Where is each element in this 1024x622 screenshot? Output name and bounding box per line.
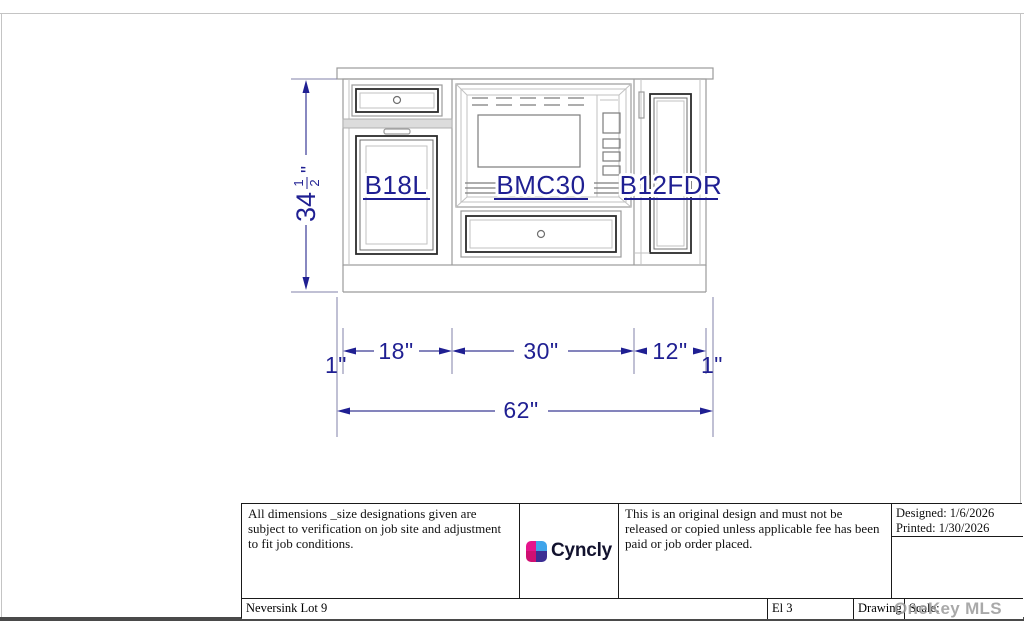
dim-12in: 12" (652, 338, 687, 364)
b18l-door-handle (384, 129, 410, 134)
elevation-cell: El 3 (767, 598, 853, 619)
empty-subcell (892, 537, 1023, 598)
dim-18in: 18" (378, 338, 413, 364)
dates-subcell: Designed: 1/6/2026 Printed: 1/30/2026 (892, 504, 1023, 537)
disclaimer-right-text: This is an original design and must not … (625, 506, 879, 551)
countertop (337, 68, 713, 79)
disclaimer-left-cell: All dimensions _size designations given … (242, 504, 519, 598)
cabinet-labels: B18L BMC30 B12FDR (363, 170, 722, 200)
disclaimer-left-text: All dimensions _size designations given … (248, 506, 501, 551)
dim-filler-left: 1" (325, 352, 347, 378)
height-dim-unit: " (298, 166, 320, 173)
drawing-page: B18L BMC30 B12FDR 34 1 2 " (0, 0, 1024, 622)
disclaimer-right-cell: This is an original design and must not … (618, 504, 891, 598)
microwave-control-buttons (603, 113, 620, 175)
cyncly-logo-icon (526, 541, 547, 562)
project-name-cell: Neversink Lot 9 (242, 598, 767, 619)
bmc30-drawer-knob (538, 231, 545, 238)
printed-date: Printed: 1/30/2026 (896, 521, 1019, 536)
microwave-window (478, 115, 580, 167)
height-dim-denominator: 2 (307, 179, 322, 186)
dimension-height: 34 1 2 " (291, 79, 338, 292)
b18l-rail (343, 119, 452, 128)
dim-30in: 30" (523, 338, 558, 364)
dimension-total-width: 62" (337, 397, 713, 423)
height-dim-numerator: 1 (291, 179, 306, 186)
b18l-drawer-knob (394, 97, 401, 104)
dates-cell: Designed: 1/6/2026 Printed: 1/30/2026 (891, 504, 1023, 598)
label-b18l: B18L (365, 170, 428, 200)
label-b12fdr: B12FDR (620, 170, 723, 200)
designed-date: Designed: 1/6/2026 (896, 506, 1019, 521)
logo-cell: Cyncly (519, 504, 618, 598)
onekey-mls-watermark: OneKey MLS (894, 599, 1002, 619)
label-bmc30: BMC30 (496, 170, 585, 200)
height-dim-whole: 34 (291, 192, 321, 222)
dim-filler-right: 1" (701, 352, 723, 378)
toe-kick (343, 265, 706, 292)
dim-62in: 62" (503, 397, 538, 423)
cyncly-wordmark: Cyncly (551, 540, 612, 562)
